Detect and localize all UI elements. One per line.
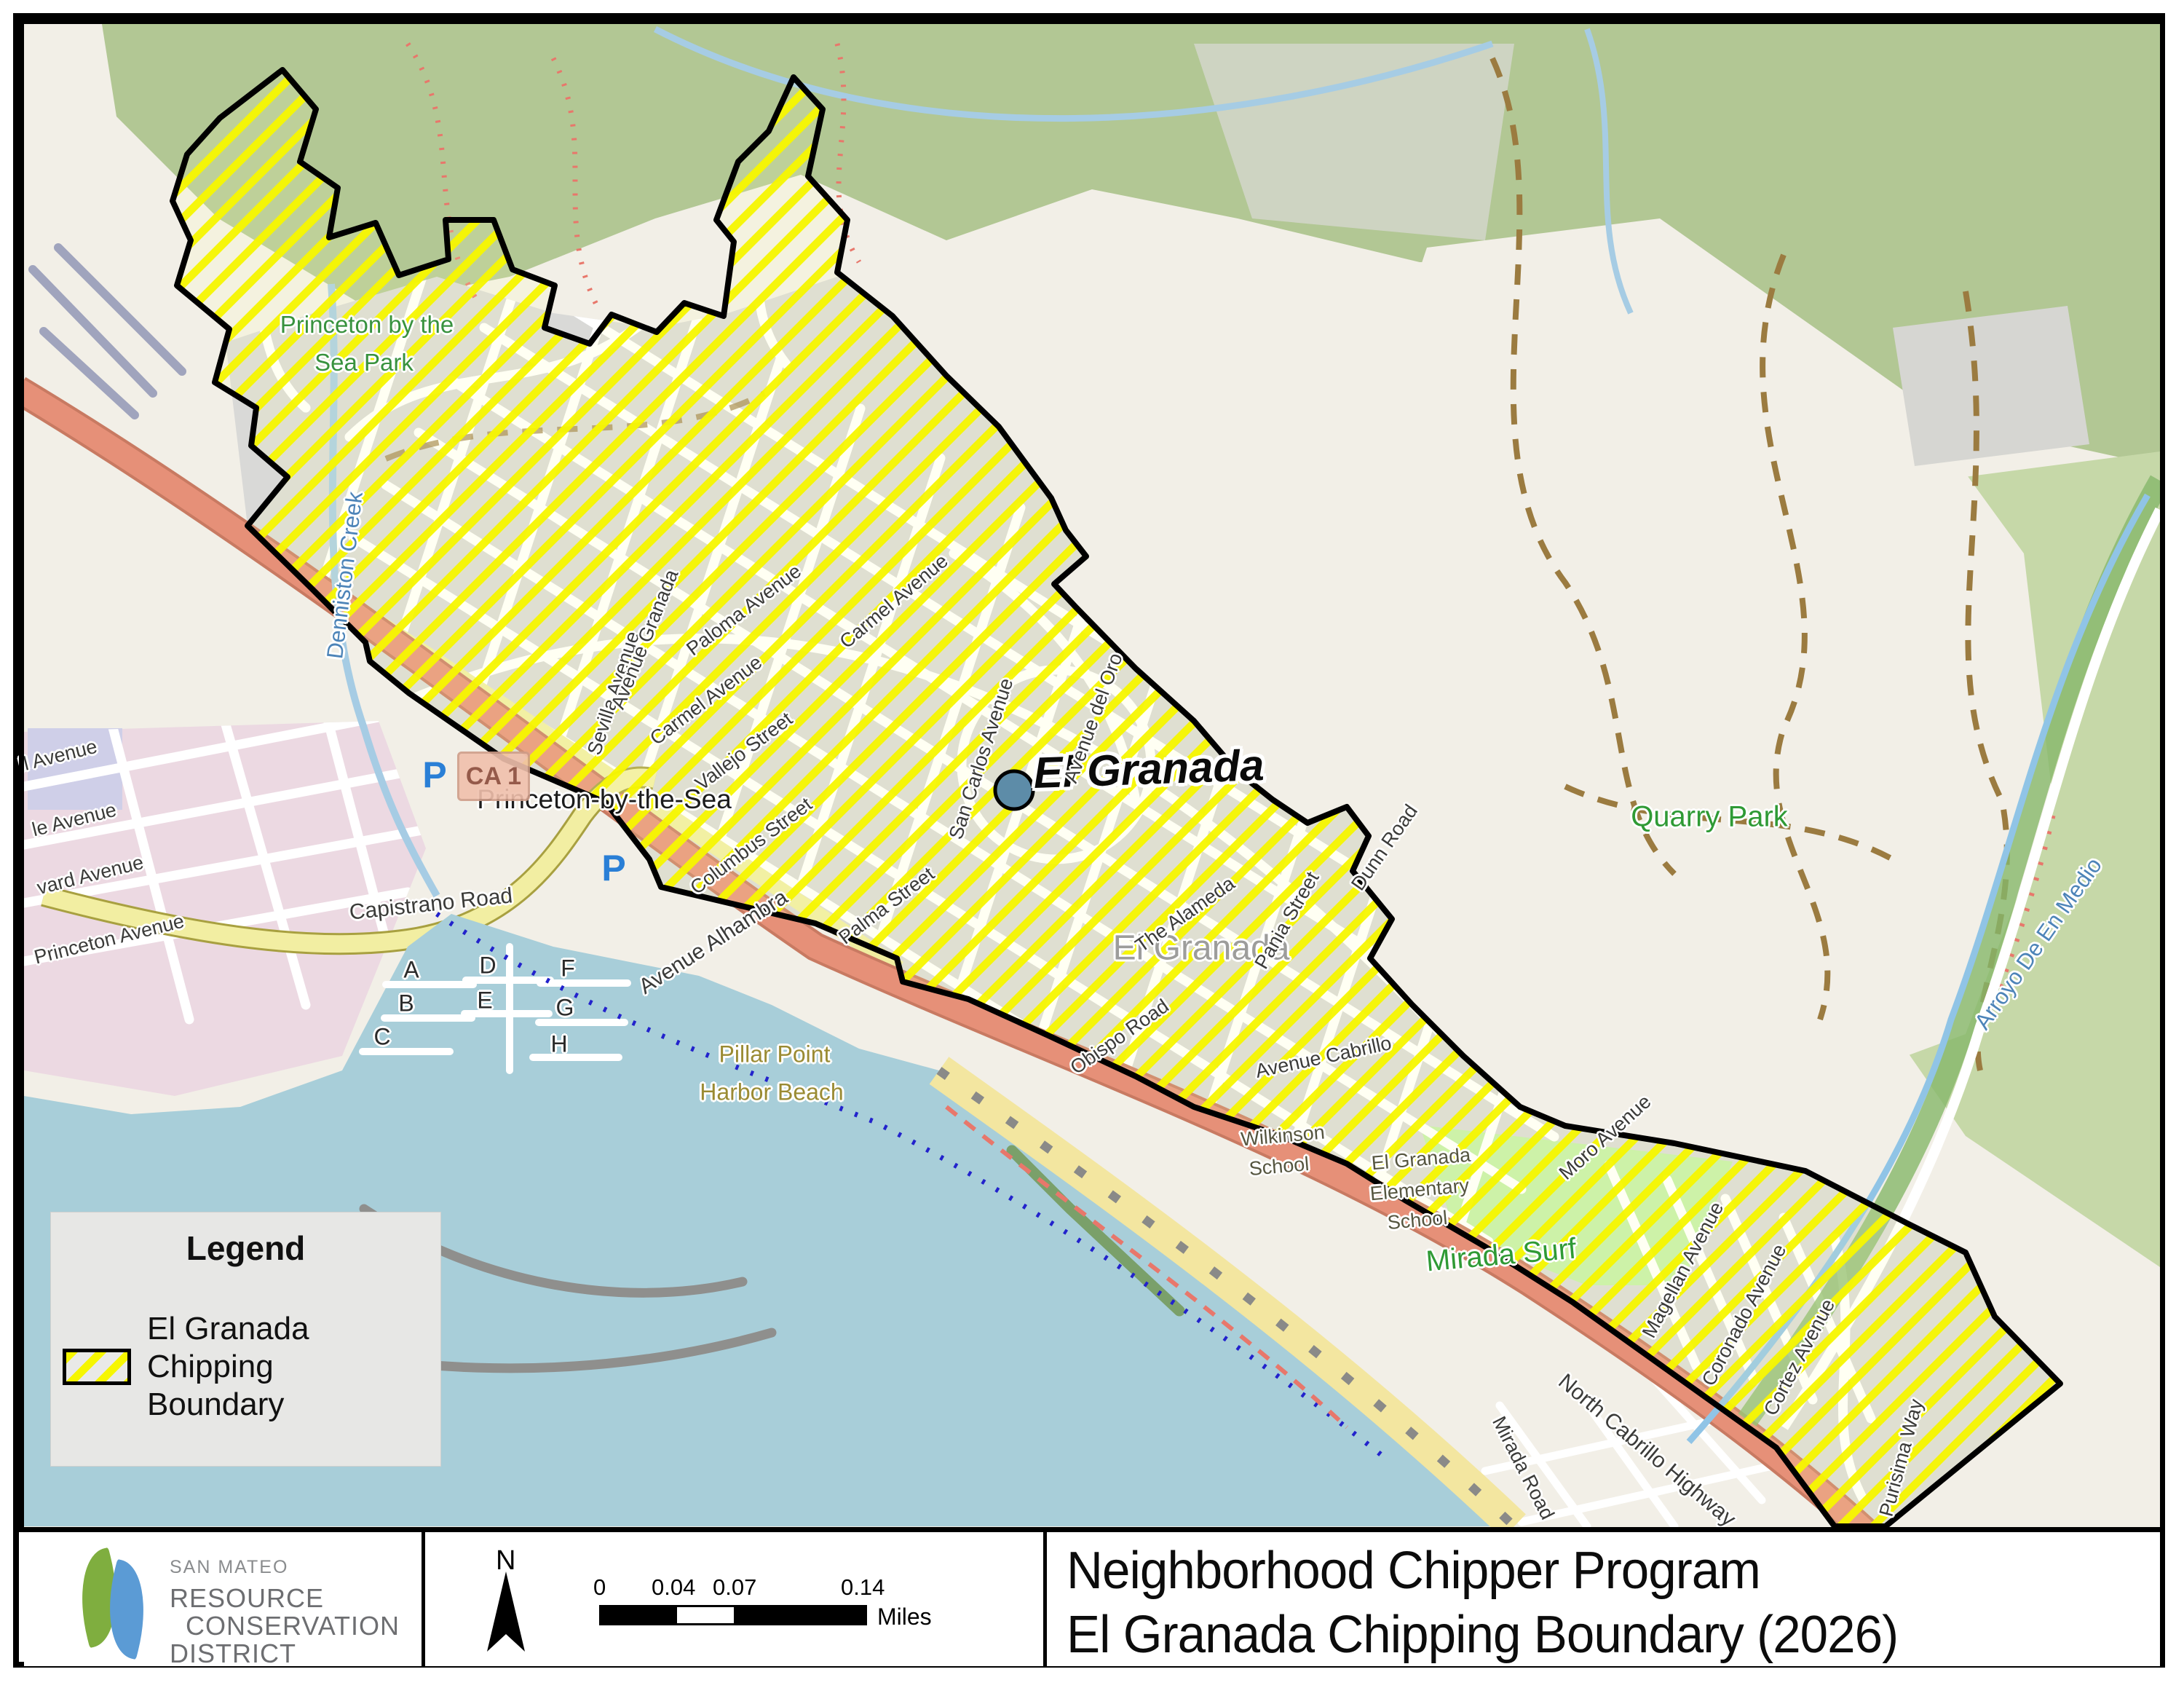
footer-divider-1	[422, 1532, 425, 1666]
footer-divider-2	[1043, 1532, 1047, 1666]
map-frame	[19, 19, 2165, 1532]
org-name-1: RESOURCE	[170, 1583, 324, 1614]
scale-bar	[599, 1605, 867, 1625]
page: { "title": { "line1": "Neighborhood Chip…	[0, 0, 2184, 1688]
org-name-2: CONSERVATION	[186, 1611, 400, 1641]
scale-tick-1: 0.04	[652, 1574, 695, 1601]
map-title-line-2: El Granada Chipping Boundary (2026)	[1067, 1604, 1898, 1668]
org-name-3: DISTRICT	[170, 1638, 296, 1669]
org-region: SAN MATEO	[170, 1557, 288, 1578]
footer-bar: SAN MATEO RESOURCE CONSERVATION DISTRICT…	[24, 1532, 2160, 1666]
scale-tick-3: 0.14	[841, 1574, 885, 1601]
scale-tick-2: 0.07	[713, 1574, 756, 1601]
rcd-logo: SAN MATEO RESOURCE CONSERVATION DISTRICT	[68, 1538, 410, 1662]
scale-tick-0: 0	[593, 1574, 606, 1601]
map-title-line-1: Neighborhood Chipper Program	[1067, 1539, 1898, 1604]
scale-unit: Miles	[877, 1604, 932, 1630]
map-title: Neighborhood Chipper Program El Granada …	[1067, 1539, 1898, 1668]
north-arrow-icon	[477, 1570, 535, 1657]
scale-bar-segment	[677, 1607, 734, 1623]
